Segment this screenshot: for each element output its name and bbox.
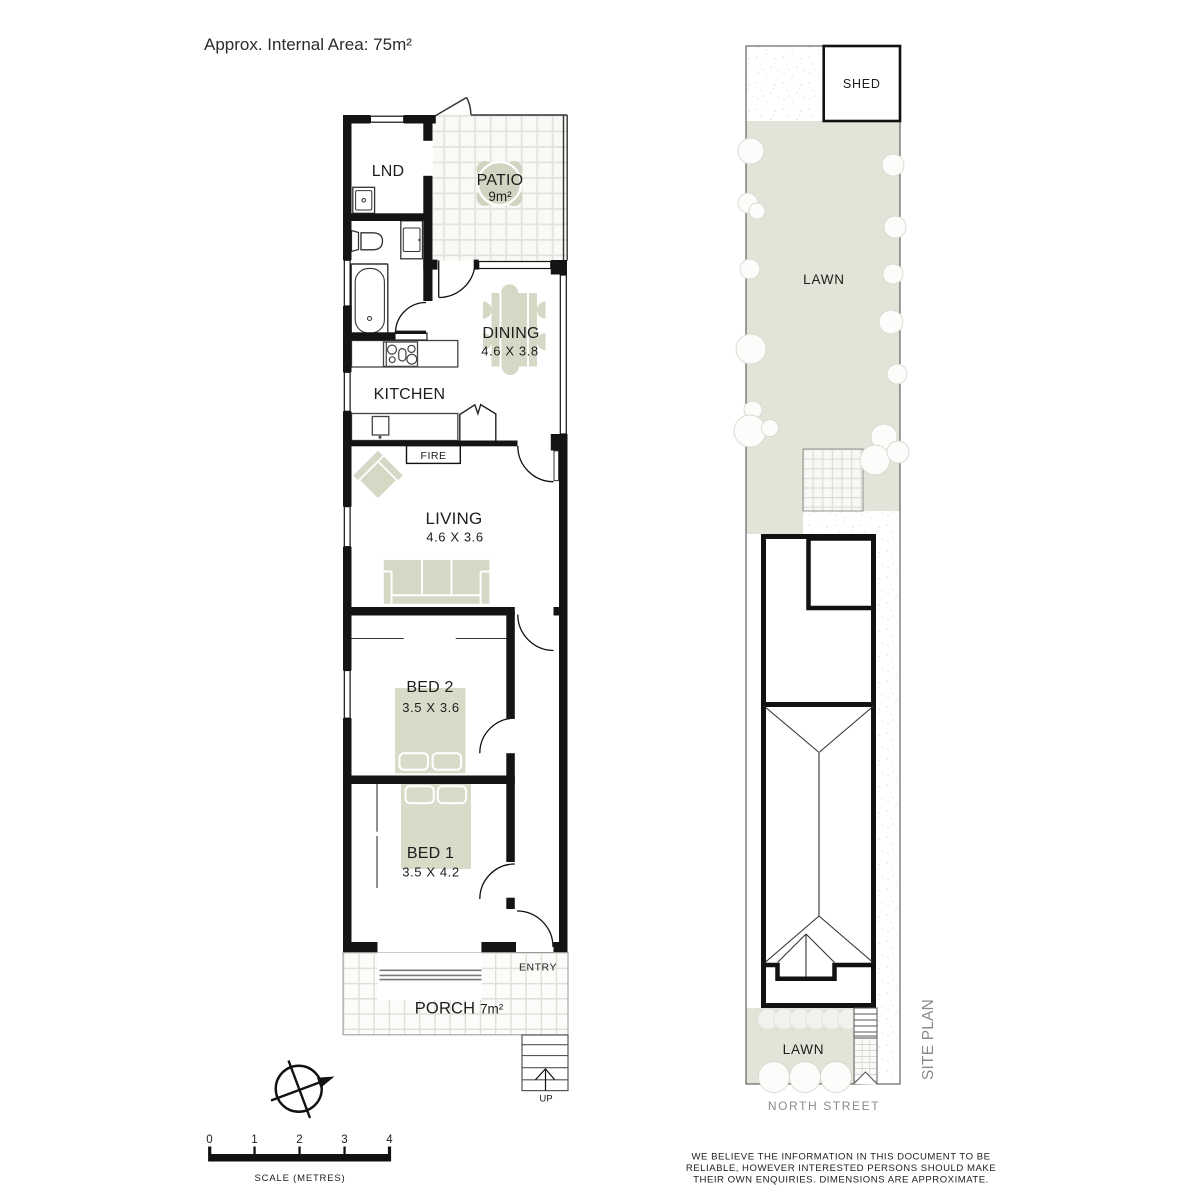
svg-text:ENTRY: ENTRY <box>519 962 557 974</box>
svg-text:LAWN: LAWN <box>803 272 845 287</box>
svg-text:SITE PLAN: SITE PLAN <box>920 999 937 1080</box>
svg-text:SCALE (METRES): SCALE (METRES) <box>255 1173 346 1184</box>
svg-text:7m²: 7m² <box>480 1002 504 1017</box>
svg-text:PORCH: PORCH <box>415 1000 476 1018</box>
svg-text:SHED: SHED <box>843 77 881 91</box>
svg-text:3.5 X 4.2: 3.5 X 4.2 <box>402 865 459 880</box>
svg-text:Approx. Internal Area: 75m²: Approx. Internal Area: 75m² <box>204 35 412 54</box>
svg-text:FIRE: FIRE <box>421 450 447 462</box>
svg-text:DINING: DINING <box>482 325 539 342</box>
svg-text:WE BELIEVE THE INFORMATION IN: WE BELIEVE THE INFORMATION IN THIS DOCUM… <box>691 1152 990 1163</box>
svg-text:4: 4 <box>386 1134 393 1146</box>
svg-text:LIVING: LIVING <box>426 509 483 528</box>
svg-text:3: 3 <box>341 1134 347 1146</box>
svg-text:BED 2: BED 2 <box>406 679 453 696</box>
svg-text:4.6 X 3.8: 4.6 X 3.8 <box>481 344 538 359</box>
svg-text:NORTH STREET: NORTH STREET <box>768 1099 880 1113</box>
svg-text:BED 1: BED 1 <box>407 845 454 862</box>
svg-text:4.6 X 3.6: 4.6 X 3.6 <box>426 530 483 545</box>
svg-text:9m²: 9m² <box>488 189 512 204</box>
svg-text:1: 1 <box>251 1134 257 1146</box>
svg-text:PATIO: PATIO <box>477 172 524 189</box>
svg-text:KITCHEN: KITCHEN <box>374 386 446 403</box>
svg-text:RELIABLE, HOWEVER INTERESTED P: RELIABLE, HOWEVER INTERESTED PERSONS SHO… <box>686 1163 996 1174</box>
svg-text:LAWN: LAWN <box>783 1042 825 1057</box>
svg-text:0: 0 <box>206 1134 212 1146</box>
svg-text:3.5 X 3.6: 3.5 X 3.6 <box>402 700 459 715</box>
svg-text:LND: LND <box>372 163 405 180</box>
svg-text:UP: UP <box>539 1094 552 1105</box>
svg-text:2: 2 <box>296 1134 302 1146</box>
svg-text:THEIR OWN ENQUIRIES. DIMENSION: THEIR OWN ENQUIRIES. DIMENSIONS ARE APPR… <box>693 1175 989 1186</box>
